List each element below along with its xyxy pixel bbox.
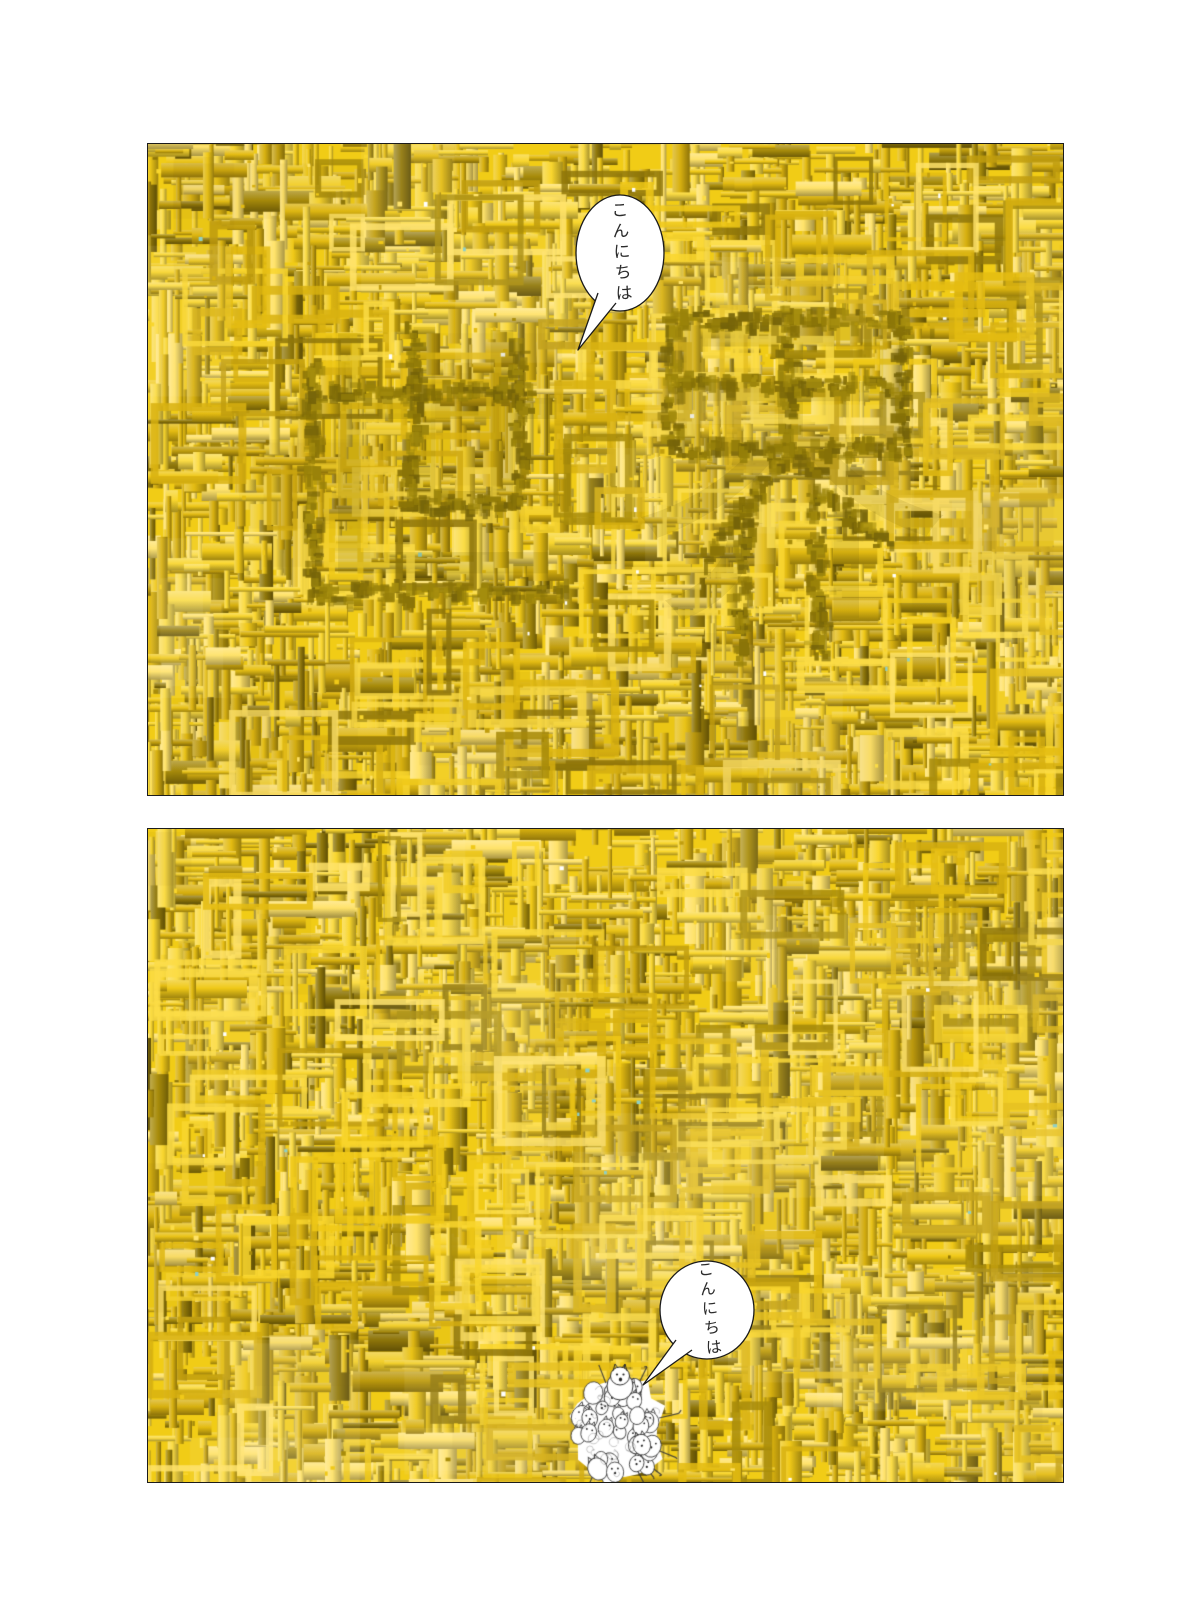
speech-bubble-bottom-text: こんにちは [655,1256,759,1363]
speech-bubble-top: こんにちは [570,193,680,358]
mosaic-texture-bottom [148,829,1063,1482]
speech-bubble-bottom: こんにちは [638,1256,762,1392]
comic-panel-bottom [147,828,1064,1483]
comic-page: 世 界 こんにちは こんにちは [0,0,1185,1618]
speech-bubble-top-text: こんにちは [573,193,667,313]
